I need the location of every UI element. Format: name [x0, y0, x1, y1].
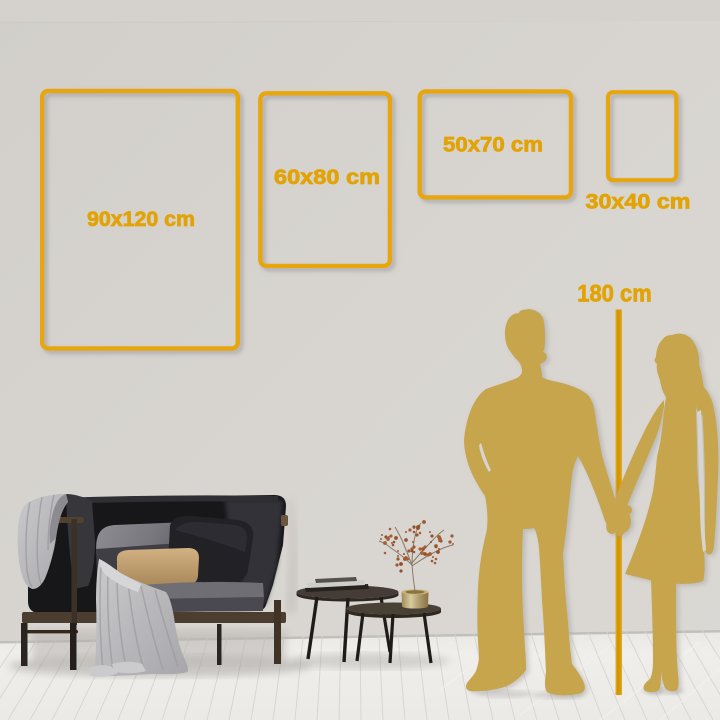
svg-text:50x70 cm: 50x70 cm — [443, 134, 543, 157]
svg-text:180 cm: 180 cm — [577, 281, 652, 308]
svg-text:60x80 cm: 60x80 cm — [274, 166, 380, 189]
svg-text:30x40 cm: 30x40 cm — [586, 190, 691, 214]
svg-text:90x120 cm: 90x120 cm — [87, 208, 195, 231]
